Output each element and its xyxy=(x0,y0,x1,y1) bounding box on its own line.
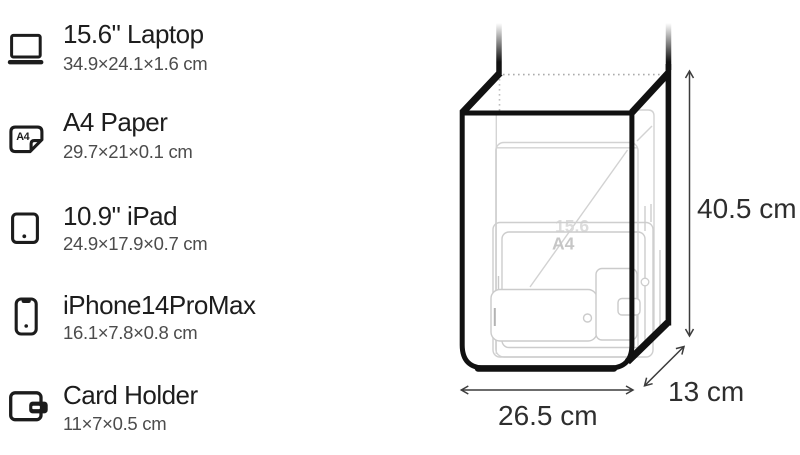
svg-text:A4: A4 xyxy=(552,234,575,254)
svg-text:A4: A4 xyxy=(16,131,29,143)
